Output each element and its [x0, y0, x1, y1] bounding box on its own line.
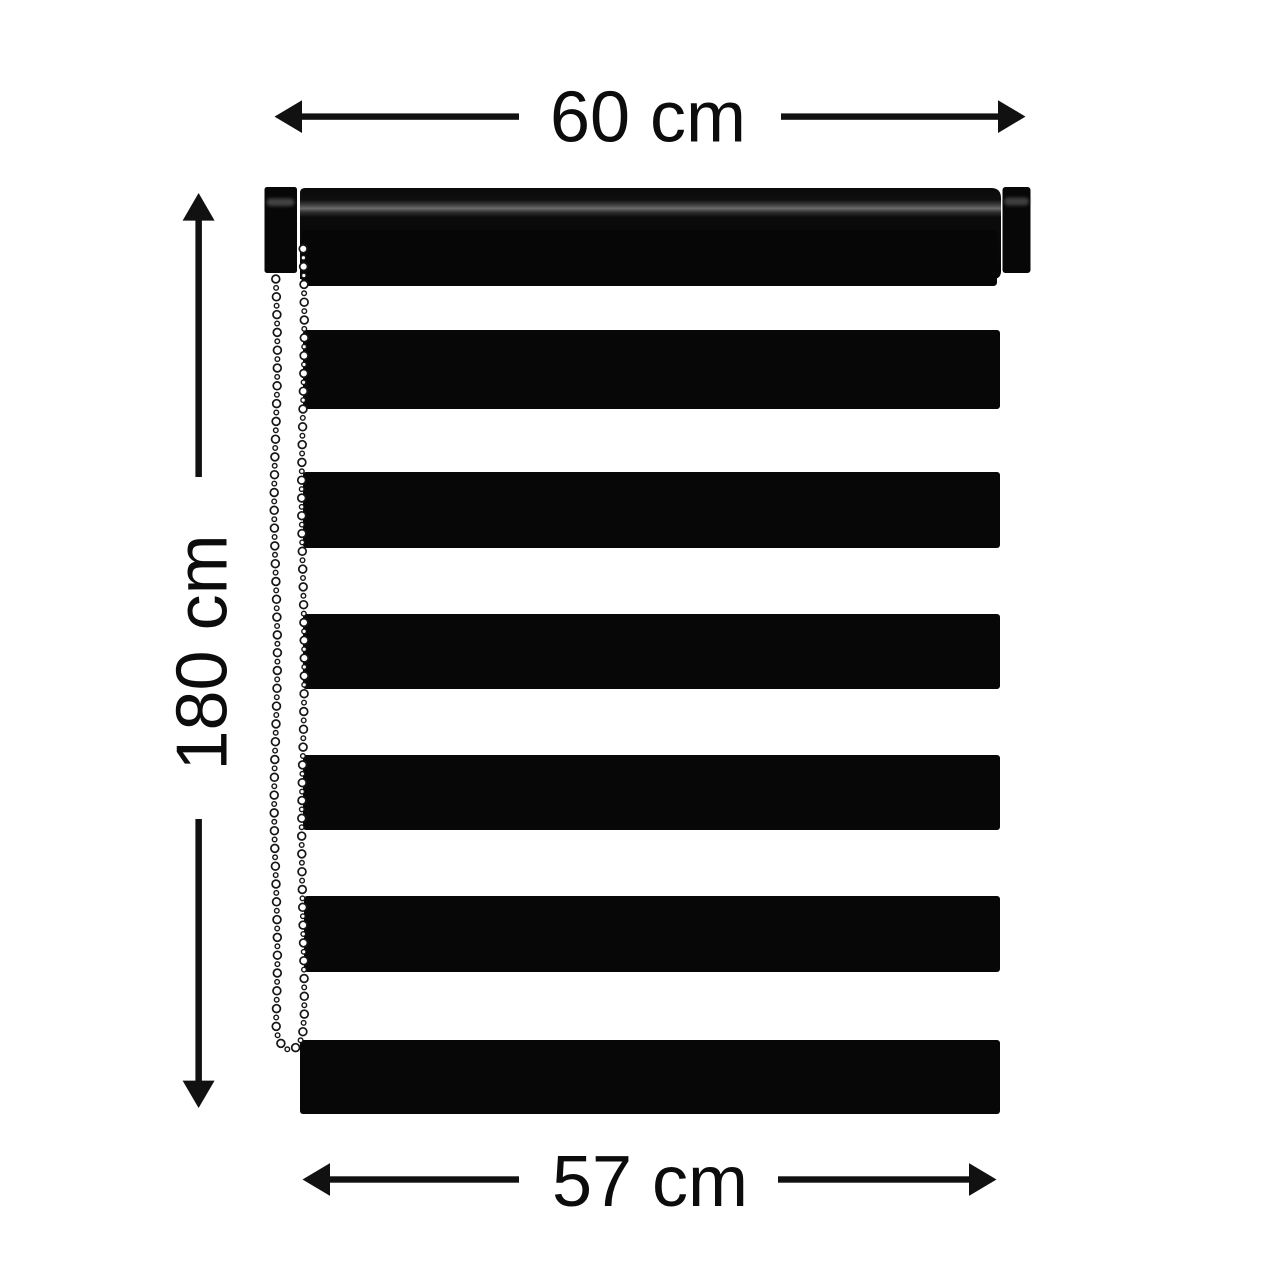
svg-text:57 cm: 57 cm [552, 1142, 748, 1222]
svg-text:60 cm: 60 cm [550, 78, 746, 158]
svg-text:180 cm: 180 cm [163, 534, 243, 770]
